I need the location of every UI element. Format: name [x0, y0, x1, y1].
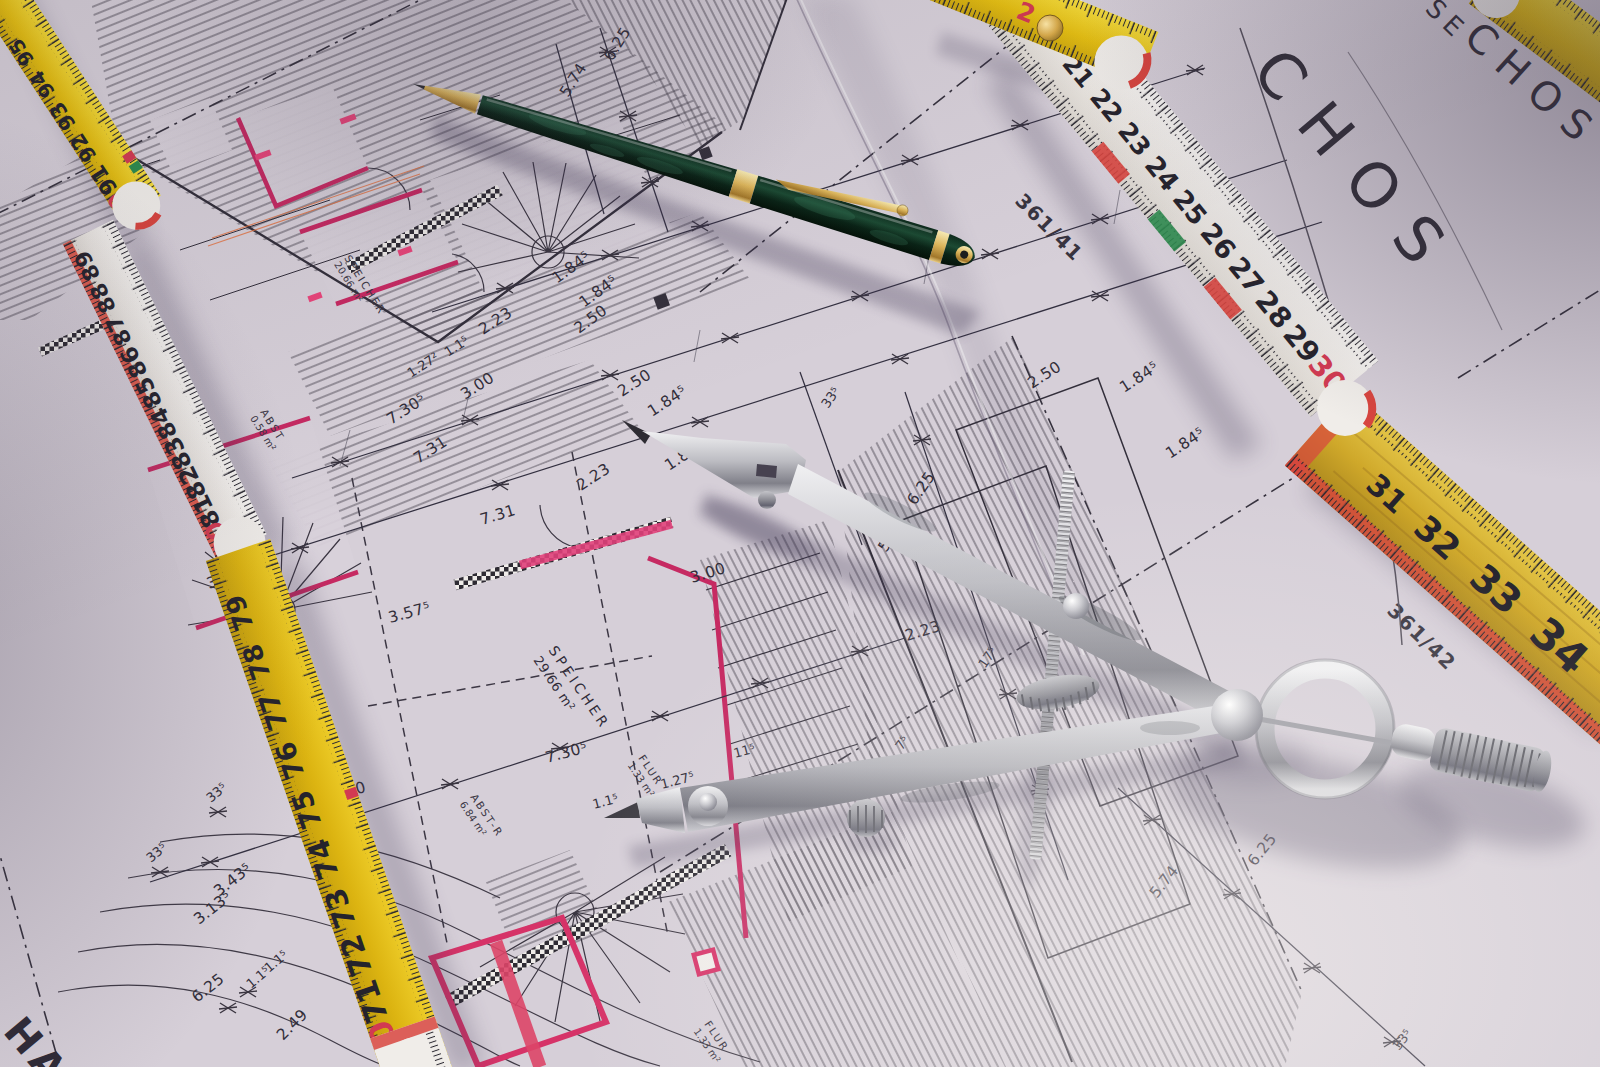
- ruler-segment-yellow-30s: 31 32 33 34: [1285, 391, 1600, 751]
- room-label-speicher: SPEICHER 29.66 m²: [531, 643, 614, 743]
- room-label-abstr: ABST-R 6.84 m²: [458, 791, 506, 846]
- photo-blueprint-scene: 6.25 5.74 1.84⁵ 1.84⁵ 2.50 2.23 1.1⁵ 1.2…: [0, 0, 1600, 1067]
- dim-label: 1.84⁵: [1116, 358, 1162, 396]
- dim-label: 2.23: [573, 460, 613, 495]
- dim-label: 7.31: [478, 501, 518, 529]
- dim-label: 1.84⁵: [1162, 424, 1208, 462]
- brass-rivet: [1037, 15, 1063, 41]
- dim-label: 3.13⁵: [190, 888, 235, 928]
- dim-label: 1.1⁵: [591, 791, 620, 812]
- dim-label: 33⁵: [1390, 1026, 1415, 1052]
- dim-label: 7.30⁵: [543, 738, 589, 766]
- dim-label: 6.25: [188, 970, 228, 1006]
- dim-label: 33⁵: [818, 384, 843, 410]
- dim-label: 33⁵: [143, 840, 169, 865]
- scene-svg: 6.25 5.74 1.84⁵ 1.84⁵ 2.50 2.23 1.1⁵ 1.2…: [0, 0, 1600, 1067]
- dim-label: 2.49: [273, 1006, 311, 1044]
- dim-label: 2.50: [1024, 358, 1064, 393]
- dim-label: 1.84⁵: [644, 382, 690, 420]
- dim-label: 2.50: [614, 366, 654, 401]
- dim-label: 3.57⁵: [386, 598, 432, 626]
- title-fragment-hau: HAU: [0, 1008, 101, 1067]
- spindle-nut: [1063, 593, 1089, 619]
- ruler-joint-disc: [1317, 380, 1373, 436]
- dim-label: 33⁵: [203, 780, 229, 805]
- pivot-ball: [1211, 689, 1263, 741]
